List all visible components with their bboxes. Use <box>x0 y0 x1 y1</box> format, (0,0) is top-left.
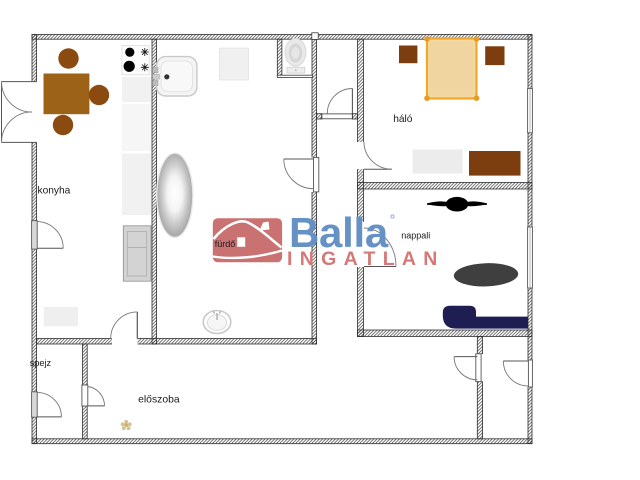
svg-text:konyha: konyha <box>38 186 71 197</box>
svg-text:előszoba: előszoba <box>138 394 180 405</box>
svg-text:spejz: spejz <box>30 358 52 368</box>
svg-text:háló: háló <box>393 114 413 125</box>
svg-text:nappali: nappali <box>401 231 430 241</box>
svg-text:fürdő: fürdő <box>215 239 236 249</box>
svg-text:INGATLAN: INGATLAN <box>287 248 445 270</box>
